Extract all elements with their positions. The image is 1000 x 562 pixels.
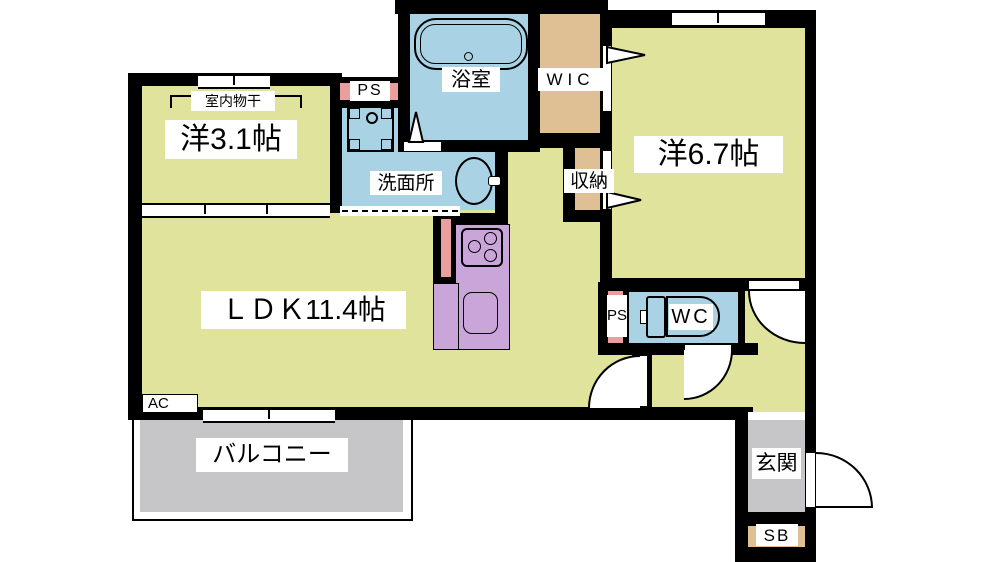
bedroom-large-label: 洋6.7帖 <box>634 136 783 173</box>
floor-plan: AC 室内物干 洋3.1帖 PS 浴室 WIC 洋6.7帖 洗面所 収納 ＬＤＫ… <box>0 0 1000 562</box>
stove-burner <box>468 240 481 253</box>
balcony-label: バルコニー <box>196 438 348 472</box>
kitchen-ps-strip <box>441 219 451 277</box>
dashed-line <box>342 210 458 212</box>
wall-bath-left <box>398 8 410 152</box>
shoe-box-label: SB <box>756 524 798 546</box>
bath-label: 浴室 <box>442 67 500 92</box>
entrance-door-leaf <box>805 452 816 508</box>
ps-top-label: PS <box>350 81 390 101</box>
wall-wc-bottom <box>598 343 758 355</box>
stove-burner <box>484 232 497 245</box>
ps-wc-label: PS <box>607 295 627 337</box>
wic-door-strip <box>602 45 612 112</box>
wall-top-b <box>395 0 608 14</box>
wall-kitchen-top <box>457 213 508 225</box>
bath-door-threshold <box>404 141 441 151</box>
entrance-door-arc <box>816 452 873 508</box>
closet-label: 収納 <box>564 169 614 193</box>
wic-label: WIC <box>538 68 603 91</box>
sliding-door-balcony <box>203 408 335 423</box>
washroom-sink-tap <box>488 176 501 186</box>
entrance-label: 玄関 <box>752 448 801 479</box>
ldk-label: ＬＤＫ11.4帖 <box>201 291 406 329</box>
window-bedroom-large <box>672 11 765 27</box>
window-tick <box>717 11 719 23</box>
wall-bottom <box>735 547 816 562</box>
washroom-dashed-opening <box>340 206 460 216</box>
washer-corner <box>349 139 360 150</box>
bathtub-drain <box>464 52 473 61</box>
wc-label: WC <box>669 304 713 330</box>
wall-left <box>128 73 142 420</box>
bedroom-large-door-leaf <box>748 280 800 290</box>
washer-corner <box>349 108 360 119</box>
washer-corner <box>381 108 392 119</box>
window-bedroom-small <box>198 74 270 89</box>
washer-faucet <box>366 112 378 124</box>
window-tick <box>233 74 235 85</box>
partition-tick <box>204 203 206 214</box>
balcony-door-tick <box>268 408 270 419</box>
kitchen-counter-lower <box>433 283 459 350</box>
toilet-tank-icon <box>646 296 666 338</box>
laundry-label: 室内物干 <box>191 91 275 111</box>
kitchen-sink-icon <box>463 292 498 334</box>
entrance-step <box>748 412 805 420</box>
ac-box: AC <box>142 394 198 413</box>
bedroom-small-label: 洋3.1帖 <box>165 120 297 159</box>
partition-tick <box>266 203 268 214</box>
stove-burner <box>484 249 497 262</box>
washer-corner <box>381 139 392 150</box>
sliding-partition-bedroom-ldk <box>142 203 330 218</box>
wall-entrance-left <box>735 413 748 562</box>
toilet-handle <box>640 310 647 324</box>
washroom-label: 洗面所 <box>370 171 442 195</box>
